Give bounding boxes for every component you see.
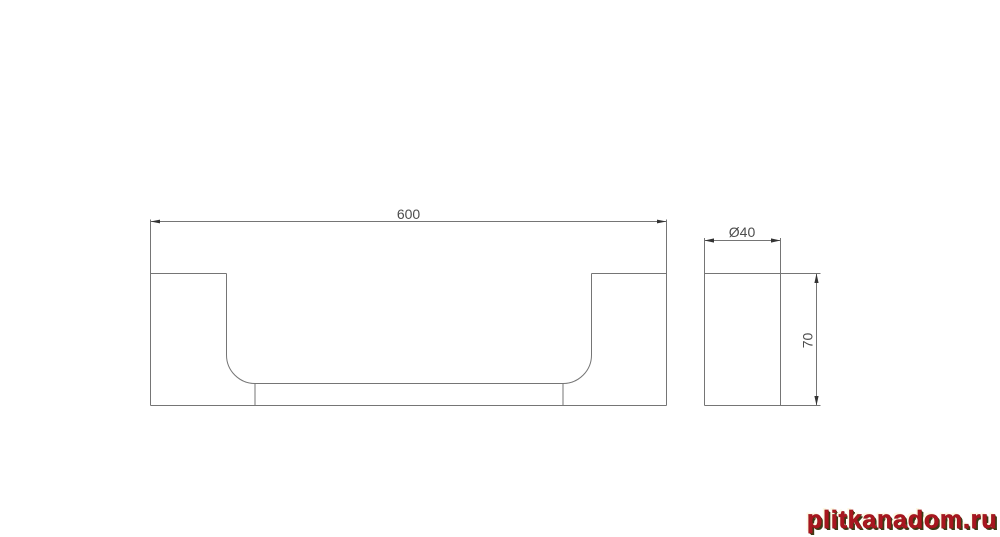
svg-text:600: 600 — [397, 206, 421, 222]
svg-text:70: 70 — [800, 333, 816, 349]
svg-text:Ø40: Ø40 — [729, 224, 756, 240]
